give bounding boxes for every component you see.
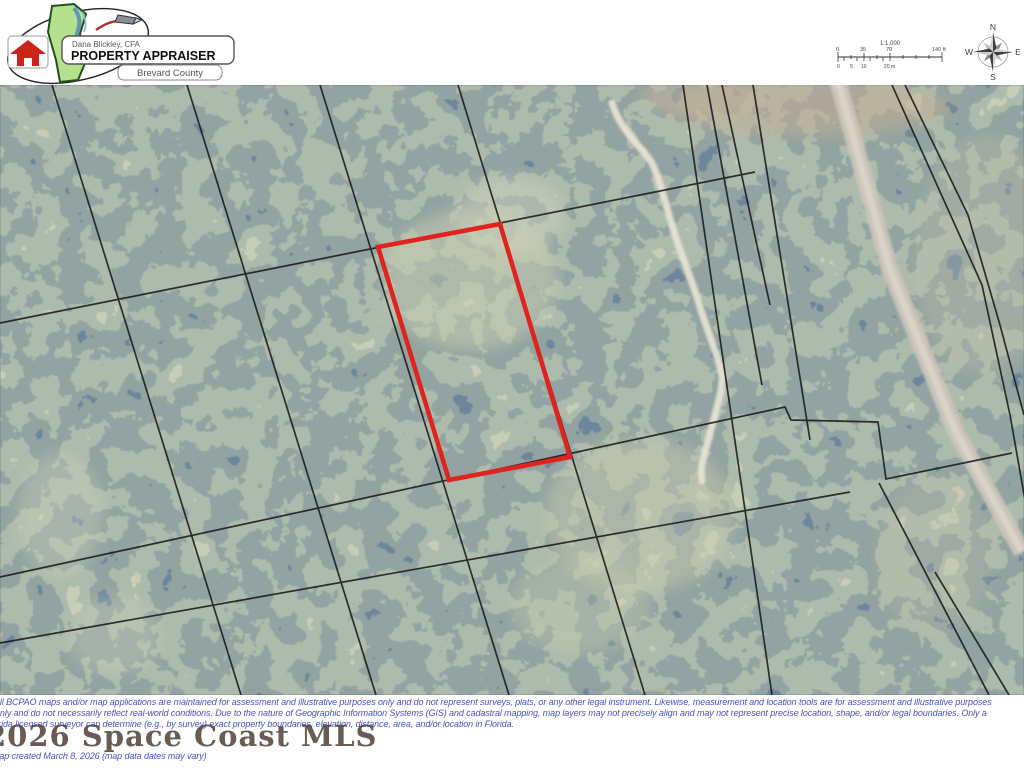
scale-ft-2: 70 (886, 47, 892, 53)
disclaimer-line-2: only and do not necessarily reflect real… (0, 708, 987, 718)
rocket-icon (96, 15, 142, 30)
scale-m-2: 10 (861, 64, 867, 70)
compass-n-label: N (990, 22, 996, 32)
aerial-map (0, 85, 1024, 695)
county-name: Brevard County (137, 68, 203, 79)
appraiser-name: Dana Blickley, CFA (72, 40, 141, 49)
scale-m-1: 5 (850, 64, 853, 70)
scale-ft-0: 0 (836, 47, 839, 53)
scale-ft-1: 35 (860, 47, 866, 53)
mls-watermark: 2026 Space Coast MLS (0, 719, 378, 753)
compass-e-label: E (1015, 47, 1021, 57)
house-icon (8, 36, 48, 68)
scale-m-0: 0 (837, 64, 840, 70)
scale-m-3: 20 m (884, 64, 895, 70)
scale-ft-3: 140 ft (932, 47, 946, 53)
compass-w-label: W (965, 47, 973, 57)
bcpao-logo: Dana Blickley, CFA PROPERTY APPRAISER Br… (0, 2, 250, 86)
map-created-date: Map created March 8, 2026 (map data date… (0, 751, 207, 761)
disclaimer-line-1: All BCPAO maps and/or map applications a… (0, 697, 992, 707)
scale-bar: 1:1,000 0 35 70 140 ft 0 5 10 20 m (828, 36, 958, 72)
footer: All BCPAO maps and/or map applications a… (0, 695, 1024, 768)
office-title: PROPERTY APPRAISER (71, 49, 215, 63)
compass-rose: N S W E (960, 22, 1024, 82)
compass-s-label: S (990, 72, 996, 82)
compass-major-points (973, 32, 1013, 72)
